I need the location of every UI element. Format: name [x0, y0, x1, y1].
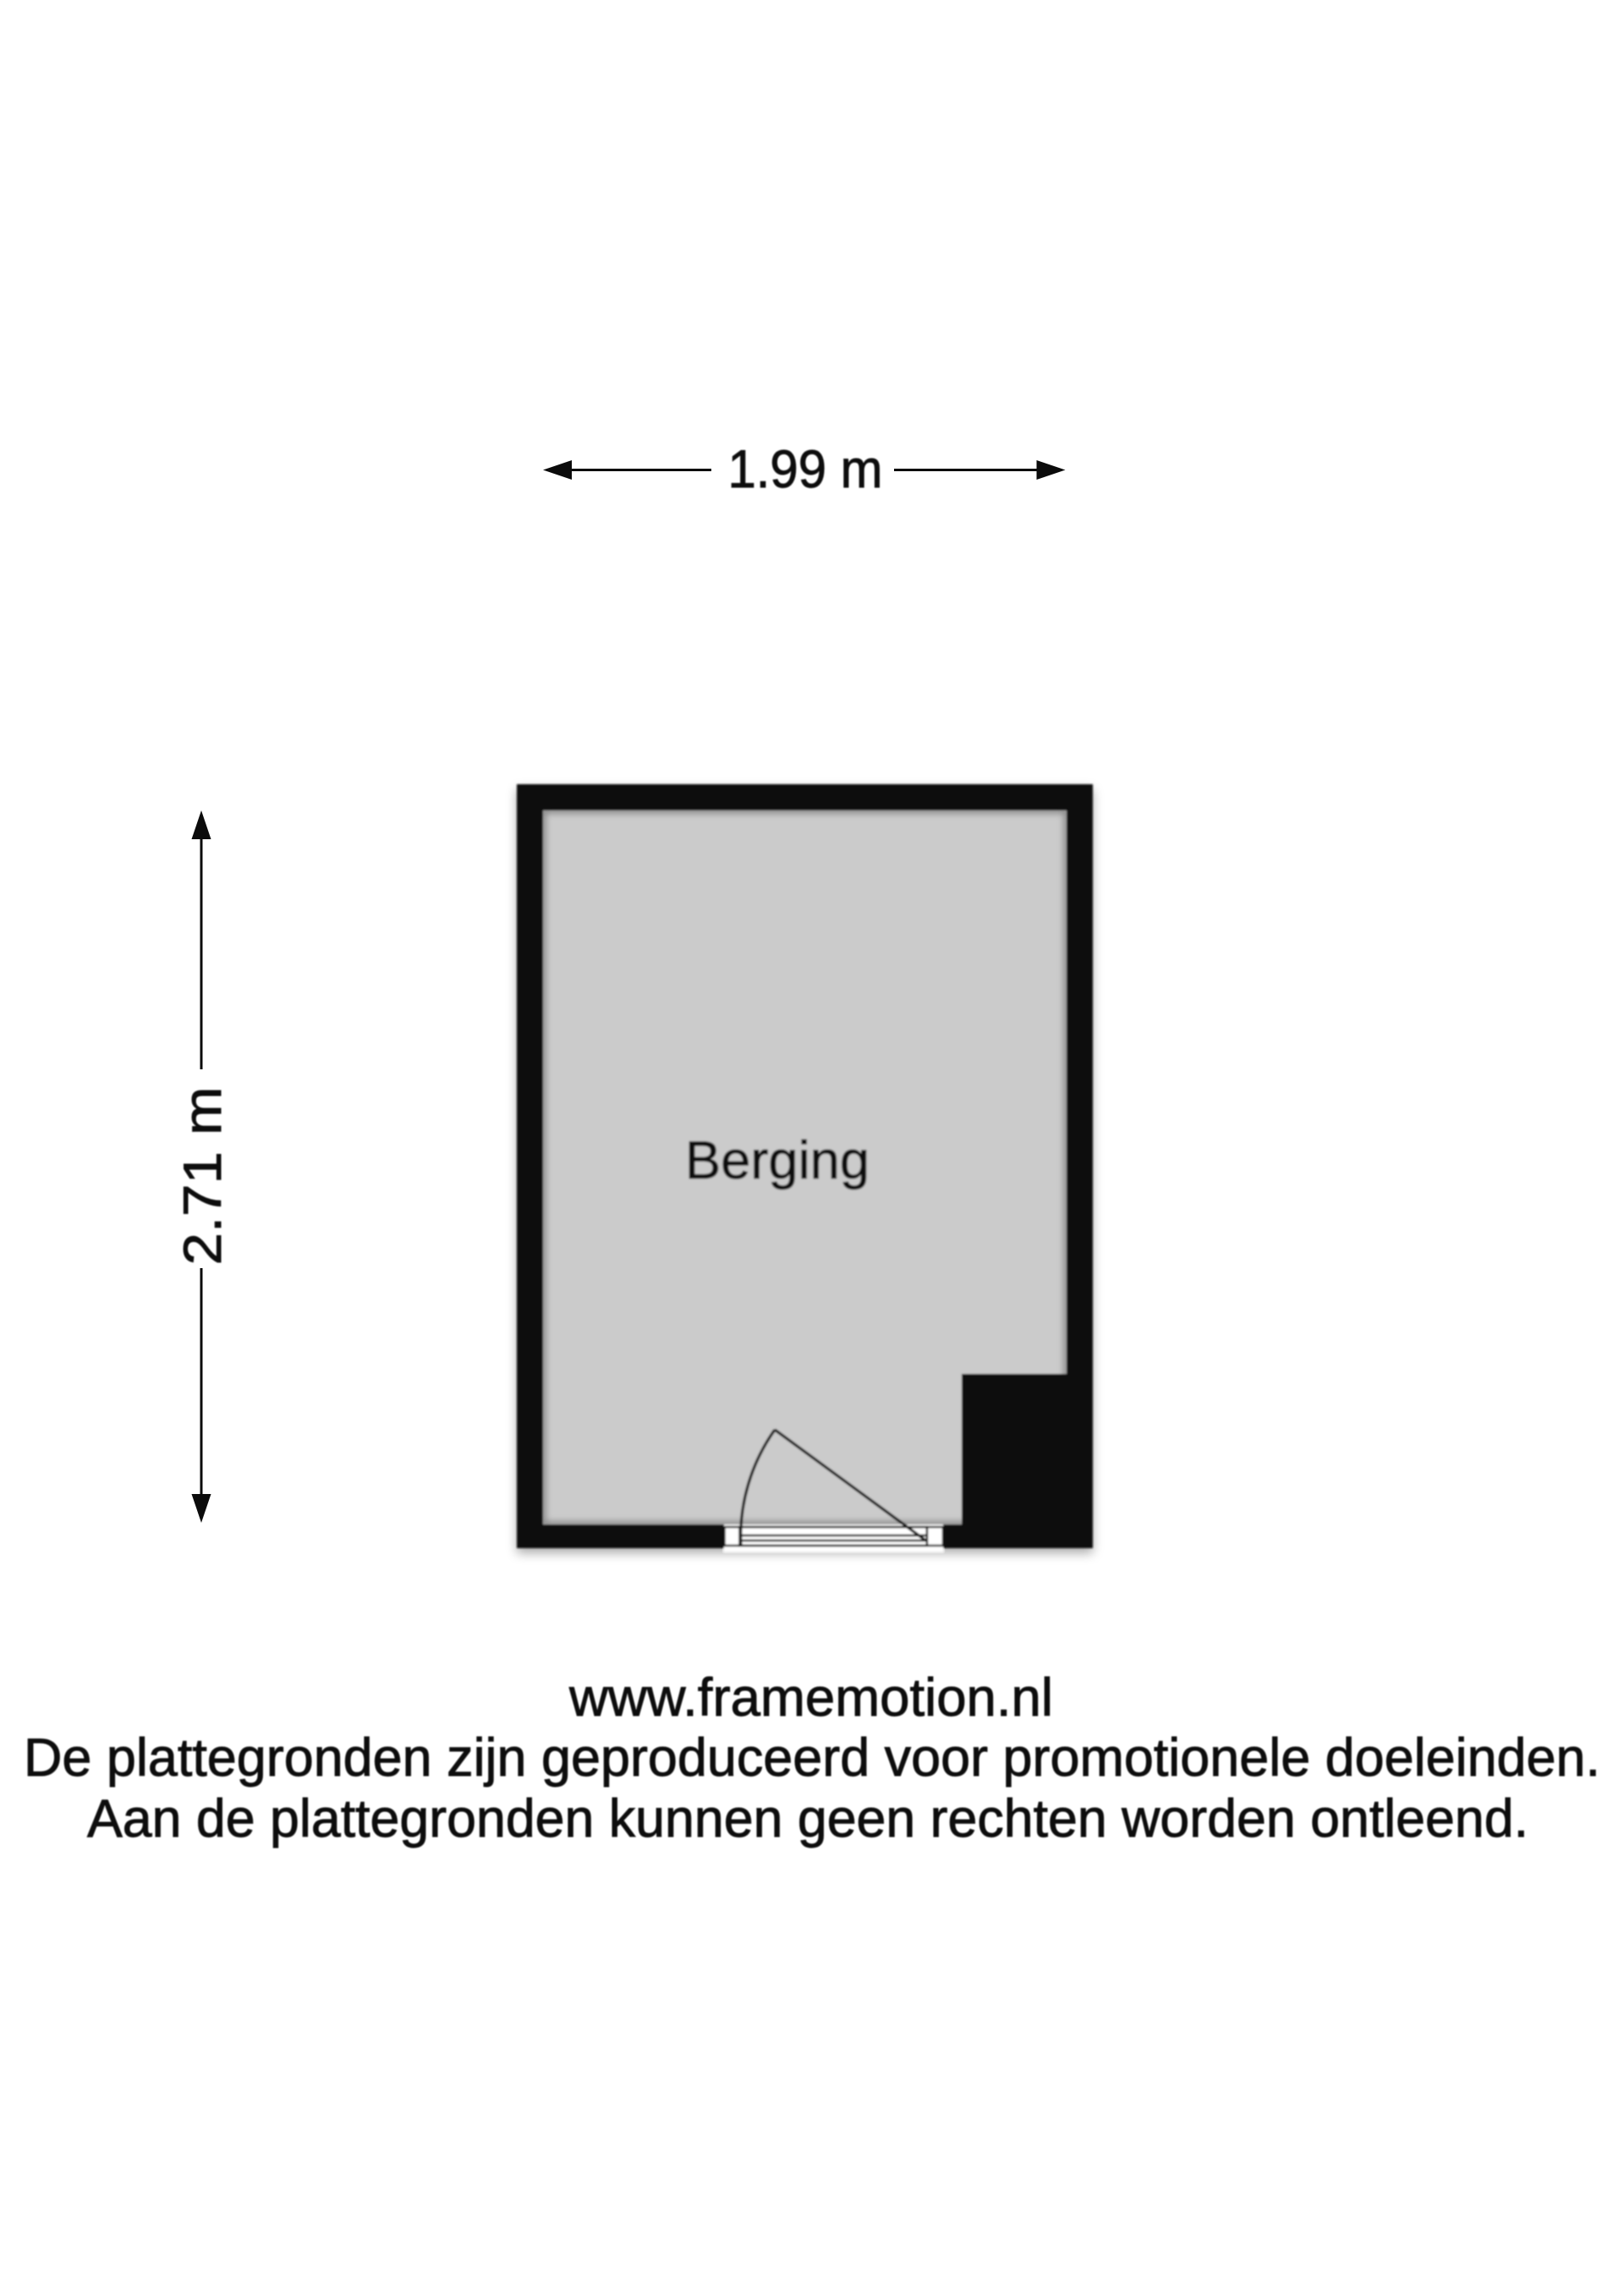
- svg-text:www.framemotion.nl: www.framemotion.nl: [568, 1668, 1053, 1727]
- svg-text:De plattegronden zijn geproduc: De plattegronden zijn geproduceerd voor …: [24, 1728, 1600, 1788]
- svg-text:Berging: Berging: [685, 1131, 870, 1190]
- svg-text:2.71 m: 2.71 m: [173, 1087, 233, 1266]
- svg-text:1.99 m: 1.99 m: [728, 440, 883, 499]
- svg-text:Aan de plattegronden kunnen ge: Aan de plattegronden kunnen geen rechten…: [87, 1789, 1528, 1848]
